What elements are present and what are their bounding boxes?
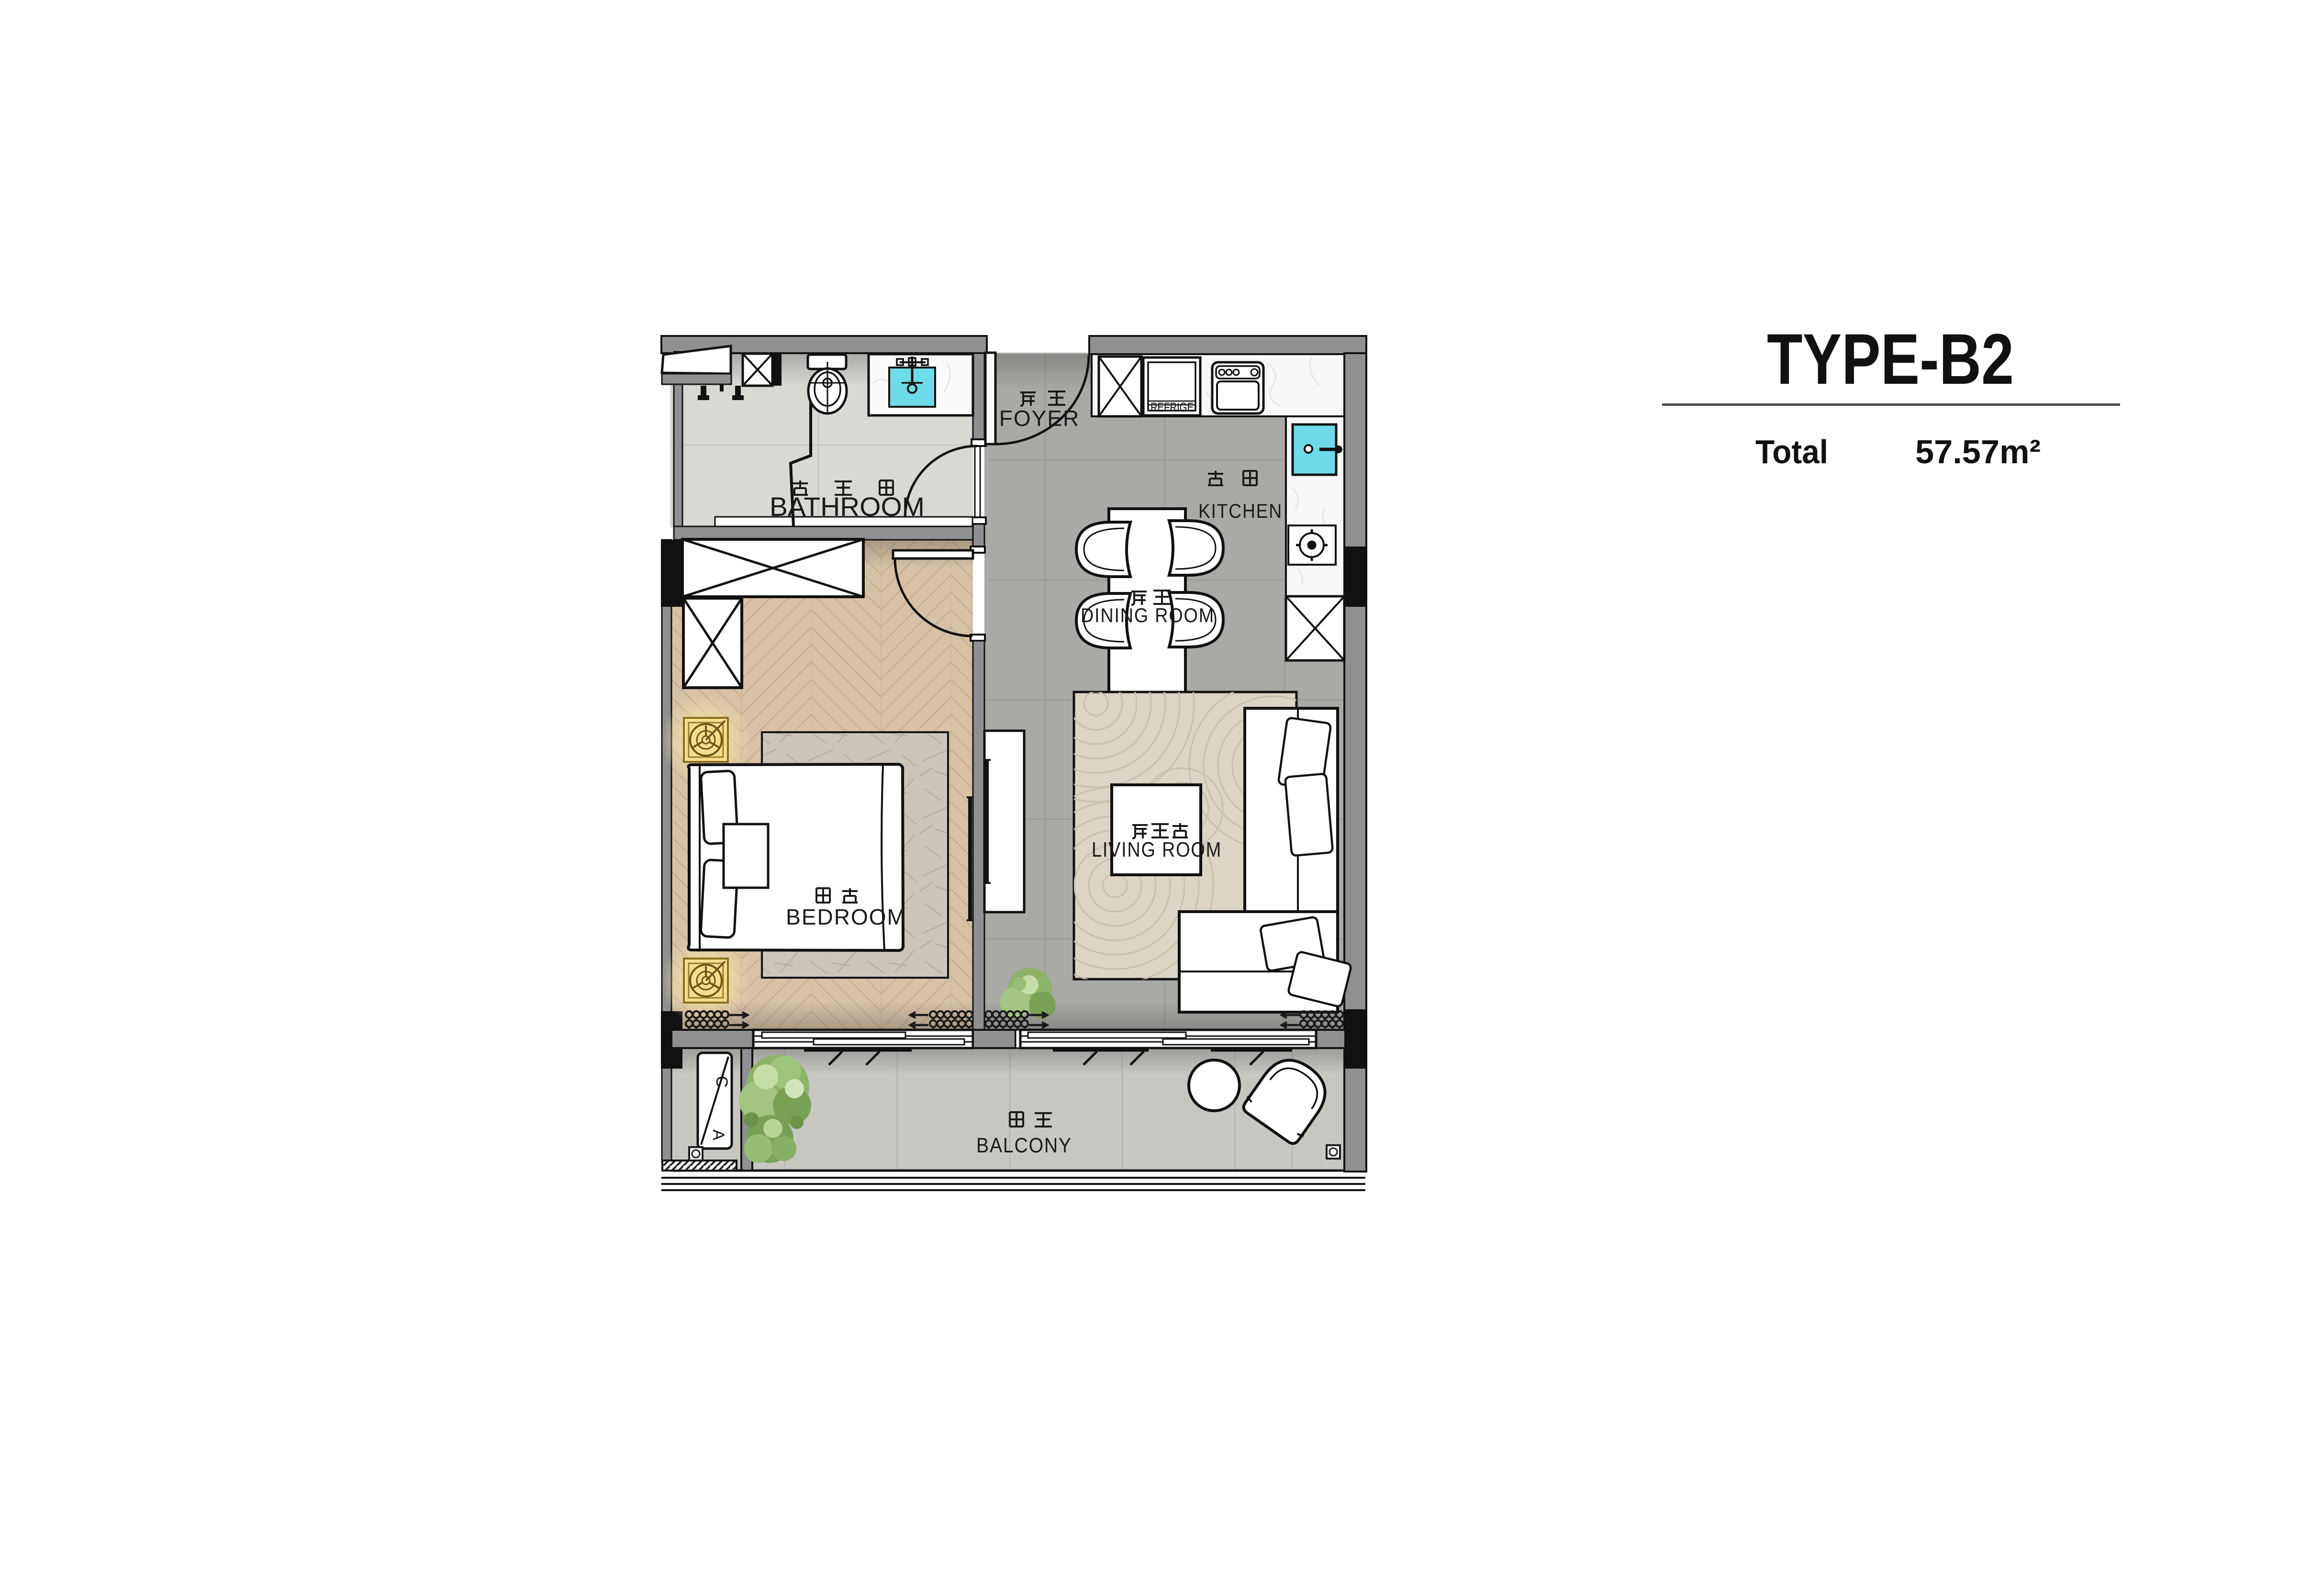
svg-text:REFRIGE: REFRIGE	[1150, 400, 1194, 414]
svg-text:Total: Total	[1755, 433, 1828, 470]
svg-text:C: C	[713, 1076, 731, 1088]
svg-text:BATHROOM: BATHROOM	[770, 491, 925, 522]
svg-text:DINING ROOM: DINING ROOM	[1081, 604, 1215, 626]
svg-text:KITCHEN: KITCHEN	[1198, 500, 1283, 522]
svg-text:BEDROOM: BEDROOM	[786, 904, 906, 929]
svg-text:TYPE-B2: TYPE-B2	[1767, 319, 2014, 399]
svg-text:57.57m²: 57.57m²	[1915, 433, 2041, 470]
svg-text:FOYER: FOYER	[999, 406, 1080, 431]
svg-text:LIVING ROOM: LIVING ROOM	[1092, 838, 1222, 861]
svg-text:A: A	[709, 1129, 727, 1140]
svg-text:BALCONY: BALCONY	[976, 1134, 1072, 1157]
